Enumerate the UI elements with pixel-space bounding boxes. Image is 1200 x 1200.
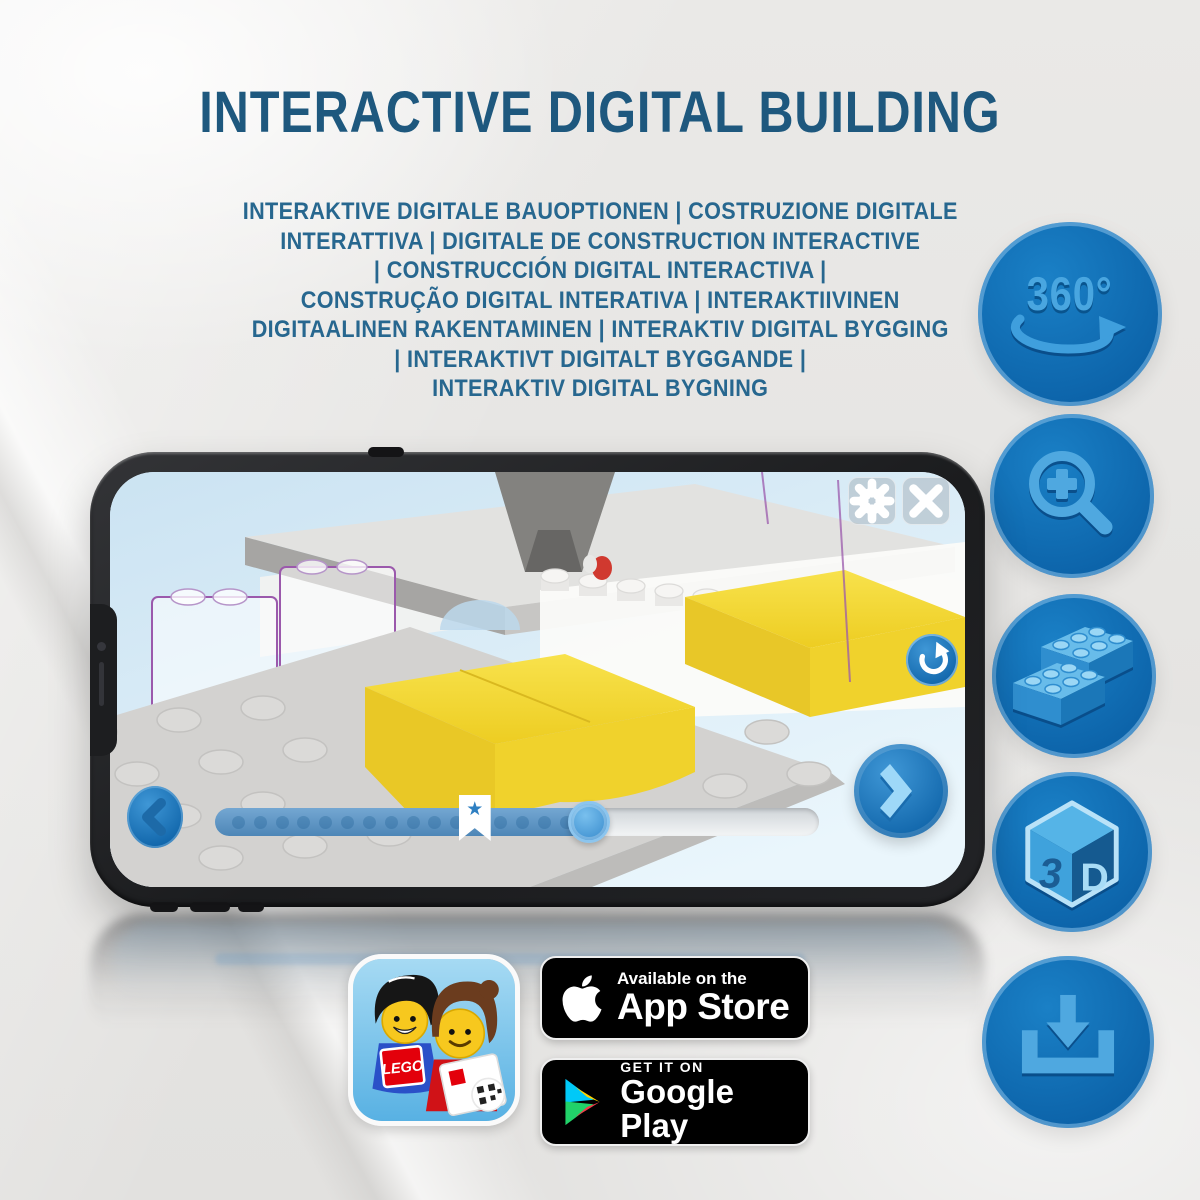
chevron-left-icon <box>131 791 179 843</box>
feature-download <box>982 956 1154 1128</box>
apple-icon <box>562 972 602 1025</box>
build-progress-slider[interactable]: ★ <box>215 808 819 836</box>
gear-icon <box>849 477 895 525</box>
slider-step-dot <box>232 816 245 829</box>
360-degrees-label: 360° <box>1027 270 1113 317</box>
speaker-slit <box>99 662 104 706</box>
svg-text:D: D <box>1080 855 1108 899</box>
chevron-right-icon <box>854 744 948 838</box>
slider-step-dot <box>494 816 507 829</box>
app-store-name: App Store <box>617 988 789 1027</box>
slider-step-dot <box>428 816 441 829</box>
feature-360-rotation: 360° <box>978 222 1162 406</box>
phone-reflection <box>90 911 985 1061</box>
feature-brick <box>992 594 1156 758</box>
close-button[interactable] <box>902 477 950 525</box>
app-store-tagline: Available on the <box>617 970 789 988</box>
close-icon <box>903 477 949 525</box>
slider-step-dot <box>385 816 398 829</box>
front-camera <box>97 642 106 651</box>
google-play-icon <box>560 1076 605 1128</box>
next-step-button[interactable] <box>854 744 948 838</box>
slider-step-dot <box>341 816 354 829</box>
page-title: INTERACTIVE DIGITAL BUILDING <box>0 84 1200 142</box>
lego-app-icon[interactable]: LEGO <box>348 954 520 1126</box>
cube-3d-icon: 3 D <box>1013 793 1131 911</box>
prev-step-button[interactable] <box>127 786 183 848</box>
slider-step-dot <box>276 816 289 829</box>
marketing-page: INTERACTIVE DIGITAL BUILDING INTERAKTIVE… <box>0 0 1200 1200</box>
phone-screen: ★ <box>110 472 965 887</box>
phone-notch <box>90 604 117 756</box>
svg-text:3: 3 <box>1039 850 1062 896</box>
phone-volume-down-button <box>238 902 264 912</box>
feature-zoom <box>990 414 1154 578</box>
rotate-icon <box>912 640 952 680</box>
slider-step-dot <box>254 816 267 829</box>
slider-step-dot <box>407 816 420 829</box>
app-store-badge[interactable]: Available on the App Store <box>540 956 810 1040</box>
slider-dots <box>215 808 589 836</box>
phone-mute-switch <box>150 902 178 912</box>
phone-mockup: ★ <box>90 452 985 907</box>
feature-3d-view: 3 D <box>992 772 1152 932</box>
slider-step-dot <box>516 816 529 829</box>
download-icon <box>1014 993 1122 1091</box>
google-play-name: Google Play <box>620 1075 808 1144</box>
slider-step-dot <box>319 816 332 829</box>
multilingual-subtitle: INTERAKTIVE DIGITALE BAUOPTIONEN | COSTR… <box>120 197 1080 404</box>
lego-app-art: LEGO <box>353 959 515 1121</box>
phone-volume-up-button <box>190 902 230 912</box>
settings-button[interactable] <box>848 477 896 525</box>
google-play-badge[interactable]: GET IT ON Google Play <box>540 1058 810 1146</box>
brick-icon <box>1013 621 1135 731</box>
rotate-arrow-icon <box>1004 313 1136 359</box>
magnifier-plus-icon <box>1018 442 1126 550</box>
rotate-button[interactable] <box>906 634 958 686</box>
slider-step-dot <box>538 816 551 829</box>
phone-power-button <box>368 447 404 457</box>
slider-step-dot <box>297 816 310 829</box>
slider-step-dot <box>363 816 376 829</box>
